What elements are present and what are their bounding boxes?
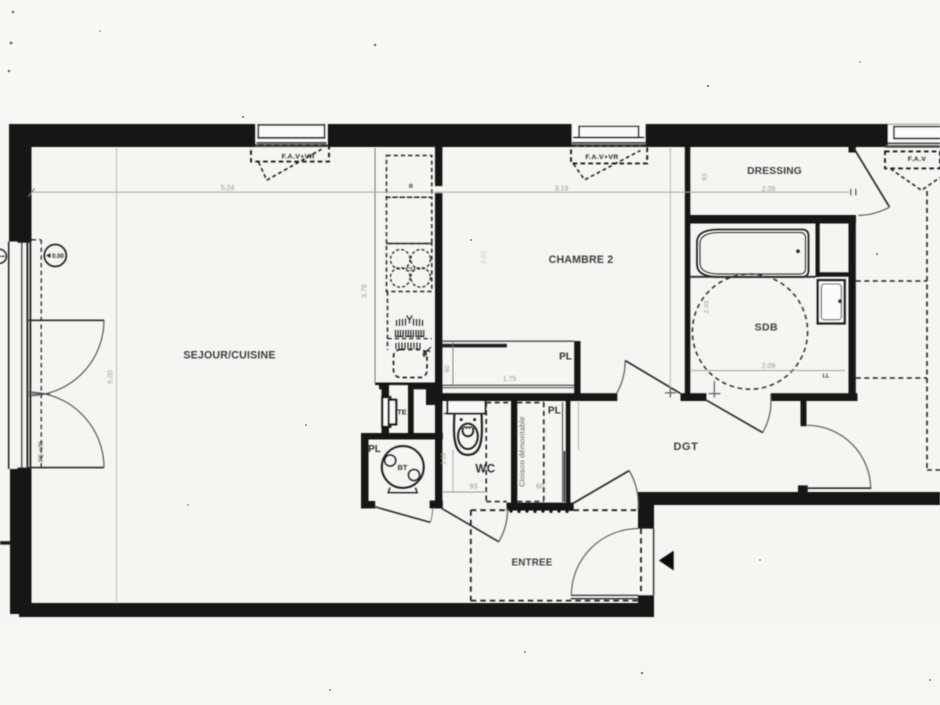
svg-text:WC: WC [475,463,495,475]
svg-text:PE+VR: PE+VR [38,441,45,462]
svg-text:CHAMBRE 2: CHAMBRE 2 [549,254,614,266]
svg-text:BT: BT [398,463,408,472]
svg-text:0.00: 0.00 [52,254,64,260]
svg-text:TE: TE [397,408,407,417]
svg-text:60: 60 [445,365,451,372]
svg-text:3.03: 3.03 [480,251,487,264]
svg-text:PL: PL [368,444,381,455]
svg-text:1.75: 1.75 [503,376,517,383]
svg-text:F.A.V+VR: F.A.V+VR [282,153,315,160]
svg-text:93: 93 [470,484,478,491]
svg-text:PL: PL [559,352,572,363]
svg-text:93: 93 [702,173,709,181]
svg-text:SDB: SDB [755,321,778,333]
svg-text:5.24: 5.24 [221,185,235,192]
svg-text:SEJOUR/CUISINE: SEJOUR/CUISINE [183,349,275,361]
svg-text:DRESSING: DRESSING [747,166,802,177]
svg-text:LL: LL [822,374,830,380]
svg-text:1.19: 1.19 [442,452,448,464]
svg-text:3.76: 3.76 [361,284,368,298]
svg-text:3.19: 3.19 [555,185,569,192]
svg-text:Cloison démontable: Cloison démontable [518,416,527,487]
svg-text:ENTREE: ENTREE [512,558,553,569]
svg-text:2.09: 2.09 [762,363,776,370]
svg-text:2.03: 2.03 [704,300,711,313]
svg-text:6.00: 6.00 [108,370,115,384]
svg-text:F.A.V: F.A.V [908,156,927,163]
svg-text:2.09: 2.09 [762,186,776,193]
svg-text:PL: PL [548,406,561,417]
svg-text:F.A.V+VR: F.A.V+VR [585,154,618,161]
svg-text:CU: CU [406,266,416,273]
svg-text:DGT: DGT [673,441,698,453]
svg-text:60: 60 [536,484,544,491]
